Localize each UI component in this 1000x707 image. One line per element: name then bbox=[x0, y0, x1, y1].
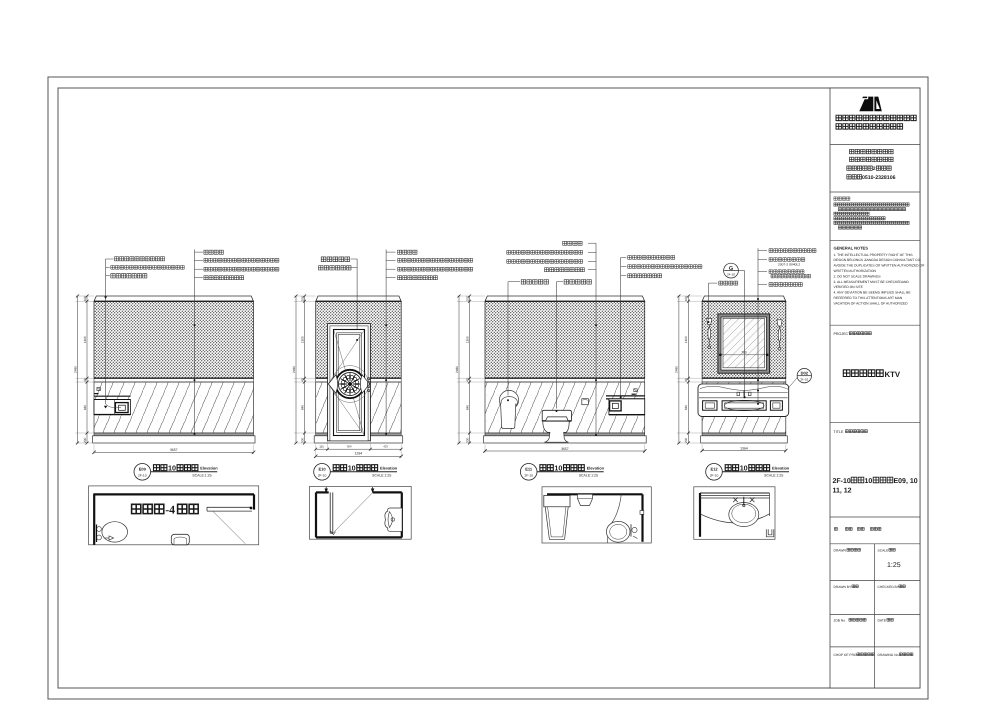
svg-text:2F-10: 2F-10 bbox=[524, 473, 533, 477]
svg-text:E12: E12 bbox=[710, 466, 718, 471]
svg-text:D02: D02 bbox=[801, 370, 809, 375]
svg-text:WRITTEN AUTHORIZATION: WRITTEN AUTHORIZATION bbox=[834, 269, 877, 273]
svg-text:SCALE:1:25: SCALE:1:25 bbox=[764, 473, 783, 477]
svg-text:GENERAL NOTES: GENERAL NOTES bbox=[834, 246, 869, 251]
svg-text:VERIFIED ON SITE: VERIFIED ON SITE bbox=[834, 285, 864, 289]
svg-text::: : bbox=[839, 528, 840, 532]
svg-text:Elevation: Elevation bbox=[200, 465, 218, 470]
svg-text:200: 200 bbox=[83, 438, 87, 443]
svg-text:3657: 3657 bbox=[170, 448, 178, 452]
svg-text:764: 764 bbox=[346, 445, 351, 449]
svg-text:2F-10: 2F-10 bbox=[833, 478, 851, 485]
svg-text:2007-2 8840L2: 2007-2 8840L2 bbox=[778, 262, 800, 266]
svg-text:1300: 1300 bbox=[83, 336, 87, 343]
svg-text:PROJECT: PROJECT bbox=[834, 332, 852, 336]
svg-text:2. DO NOT SCALE DRAWINGS: 2. DO NOT SCALE DRAWINGS bbox=[834, 274, 882, 278]
svg-text:4. ANY DEVIATION BE SEEMS IMPL: 4. ANY DEVIATION BE SEEMS IMPLIED SHALL … bbox=[834, 291, 912, 295]
svg-text:SCALE:1:25: SCALE:1:25 bbox=[372, 473, 391, 477]
svg-text:Elevation: Elevation bbox=[380, 465, 398, 470]
svg-text:2480: 2480 bbox=[292, 366, 296, 373]
svg-text:SCALE:1:25: SCALE:1:25 bbox=[192, 473, 211, 477]
svg-text:3657: 3657 bbox=[561, 447, 569, 451]
svg-text:SCALE:1:25: SCALE:1:25 bbox=[579, 473, 598, 477]
svg-text:10: 10 bbox=[865, 478, 873, 485]
svg-text:1300: 1300 bbox=[300, 336, 304, 343]
svg-text:2F-10: 2F-10 bbox=[138, 473, 147, 477]
svg-text:TITLE: TITLE bbox=[834, 430, 844, 434]
svg-text:DESIGN BELONGS JIANGDA DESIGN: DESIGN BELONGS JIANGDA DESIGN CONSULTANT… bbox=[834, 258, 922, 262]
svg-text:Elevation: Elevation bbox=[772, 465, 790, 470]
svg-text:1300: 1300 bbox=[465, 336, 469, 343]
svg-text:DATE: DATE bbox=[878, 619, 887, 623]
svg-text:427: 427 bbox=[383, 445, 388, 449]
svg-text:CHECKED BY: CHECKED BY bbox=[878, 585, 900, 589]
svg-text:40: 40 bbox=[83, 378, 87, 382]
svg-text:840: 840 bbox=[684, 405, 688, 410]
svg-text:2480: 2480 bbox=[73, 366, 77, 373]
svg-text:Elevation: Elevation bbox=[587, 465, 605, 470]
svg-text:CHOP OF PRO: CHOP OF PRO bbox=[834, 653, 857, 657]
svg-text:2F-10: 2F-10 bbox=[800, 377, 808, 381]
svg-text:10: 10 bbox=[740, 464, 748, 473]
svg-text:E11: E11 bbox=[525, 466, 533, 471]
svg-text:11, 12: 11, 12 bbox=[833, 487, 852, 494]
svg-text:KTV: KTV bbox=[885, 370, 901, 379]
svg-text:2480: 2480 bbox=[675, 366, 679, 373]
svg-text:200: 200 bbox=[300, 438, 304, 443]
svg-text:100: 100 bbox=[83, 296, 87, 301]
svg-text:115: 115 bbox=[319, 445, 324, 449]
svg-text:100: 100 bbox=[684, 296, 688, 301]
svg-text:2F-10: 2F-10 bbox=[727, 272, 735, 276]
svg-text:2: 2 bbox=[873, 166, 876, 172]
svg-text:10: 10 bbox=[168, 464, 176, 473]
svg-text:40: 40 bbox=[465, 378, 469, 382]
svg-text:E10: E10 bbox=[318, 466, 326, 471]
svg-text:840: 840 bbox=[83, 405, 87, 410]
svg-text:DRAWN: DRAWN bbox=[834, 549, 847, 553]
svg-text:1294: 1294 bbox=[355, 452, 363, 456]
svg-text:40: 40 bbox=[300, 378, 304, 382]
svg-text:10: 10 bbox=[554, 464, 562, 473]
svg-text:3. ALL MEASUREMENT MUST BE CHE: 3. ALL MEASUREMENT MUST BE CHECKEDAND bbox=[834, 280, 910, 284]
svg-text:200: 200 bbox=[684, 438, 688, 443]
svg-text:1. THE INTELLECTUAL PROPERTY R: 1. THE INTELLECTUAL PROPERTY RIGHT OF TH… bbox=[834, 253, 914, 257]
svg-text:1:25: 1:25 bbox=[887, 562, 901, 569]
svg-text:VACATION OF ACTION SHALL OF AU: VACATION OF ACTION SHALL OF AUTHORIZED bbox=[834, 301, 909, 305]
svg-text:100: 100 bbox=[300, 296, 304, 301]
svg-text:0510-2328106: 0510-2328106 bbox=[862, 175, 896, 181]
svg-text:REFERRED TO THIS ATTENTIONS AR: REFERRED TO THIS ATTENTIONS ART MAN bbox=[834, 296, 903, 300]
svg-text:840: 840 bbox=[300, 405, 304, 410]
svg-text:200: 200 bbox=[465, 438, 469, 443]
svg-text:2F-10: 2F-10 bbox=[318, 473, 327, 477]
svg-text:2F-10: 2F-10 bbox=[710, 473, 719, 477]
svg-text:2480: 2480 bbox=[455, 366, 459, 373]
svg-text:840: 840 bbox=[465, 405, 469, 410]
svg-text:1364: 1364 bbox=[740, 446, 748, 450]
svg-text:E09, 10: E09, 10 bbox=[894, 478, 918, 485]
svg-text:100: 100 bbox=[465, 296, 469, 301]
svg-text:AVOIDE THE DUPLICATES OR WRITT: AVOIDE THE DUPLICATES OR WRITTEN AUTHORI… bbox=[834, 264, 925, 268]
svg-text:40: 40 bbox=[684, 378, 688, 382]
svg-text:DRAWING No.: DRAWING No. bbox=[878, 653, 900, 657]
svg-text:780: 780 bbox=[741, 351, 747, 355]
svg-text:1300: 1300 bbox=[684, 336, 688, 343]
svg-text:G: G bbox=[729, 266, 733, 272]
svg-text:JOB No.: JOB No. bbox=[834, 619, 847, 623]
svg-text:E09: E09 bbox=[139, 466, 147, 471]
svg-text:DRAWN BY: DRAWN BY bbox=[834, 585, 852, 589]
svg-text:-4: -4 bbox=[165, 503, 175, 517]
svg-text:10: 10 bbox=[348, 464, 356, 473]
svg-text:SCALE: SCALE bbox=[878, 549, 890, 553]
